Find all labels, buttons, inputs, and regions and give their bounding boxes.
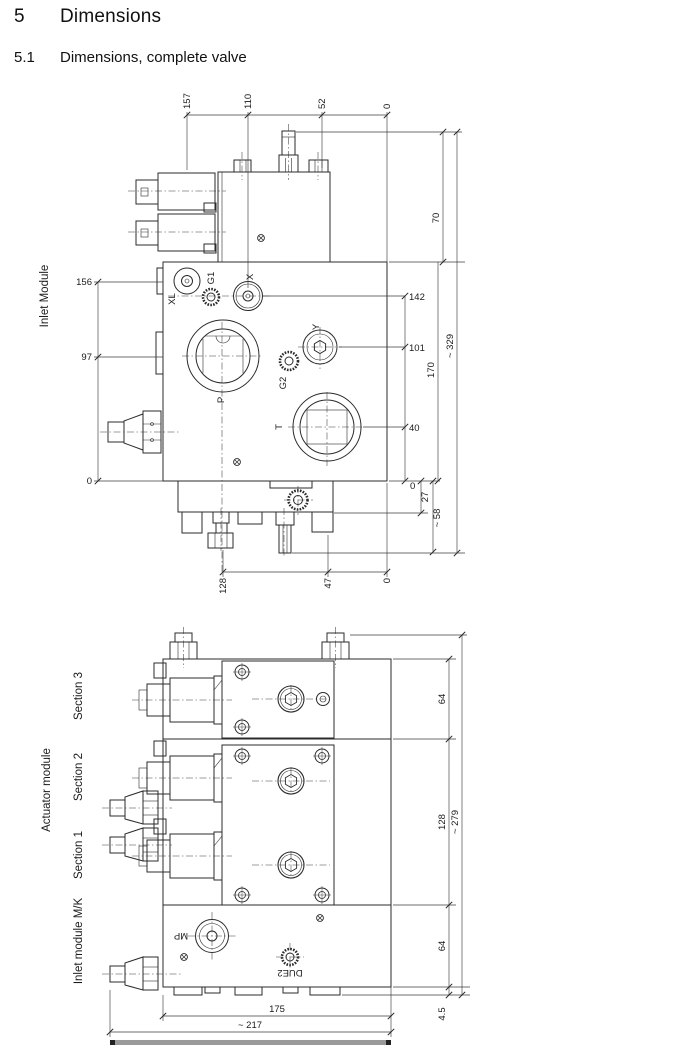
label-actuator-module: Actuator module xyxy=(41,748,53,832)
label-section-3: Section 3 xyxy=(73,672,85,720)
dim-left-97: 97 xyxy=(81,352,92,363)
dim-bottom-0: 0 xyxy=(382,578,393,583)
dim-right-279: ~ 279 xyxy=(450,810,461,834)
bottom-valve-block xyxy=(163,633,391,995)
dim-mark-101: 101 xyxy=(409,343,425,354)
dim-below-0: 0 xyxy=(410,481,415,492)
bottom-drawing: 64 128 64 4.5 ~ 279 175 ~ 217 MP DUE2 Ac… xyxy=(41,627,470,1045)
dim-left-156: 156 xyxy=(76,277,92,288)
dim-bottom-47: 47 xyxy=(323,578,334,589)
dim-right-4-5: 4.5 xyxy=(437,1007,448,1020)
top-valve-body xyxy=(156,131,387,481)
dim-left-0: 0 xyxy=(87,476,92,487)
bolt-icon xyxy=(313,747,331,765)
port-label-p: P xyxy=(216,397,227,403)
bottom-cone-connectors xyxy=(110,791,158,990)
dim-bottom-175: 175 xyxy=(269,1004,285,1015)
top-port-labels: XL G1 X P G2 Y T xyxy=(167,272,322,430)
port-label-xl: XL xyxy=(167,293,178,305)
port-label-due2: DUE2 xyxy=(277,967,302,978)
screw-icon xyxy=(234,459,241,466)
bolt-icon xyxy=(233,718,251,736)
dim-bottom-217: ~ 217 xyxy=(238,1020,262,1031)
bottom-dim-labels: 64 128 64 4.5 ~ 279 175 ~ 217 xyxy=(238,694,461,1031)
top-drawing: 157 110 52 0 156 97 0 70 170 ~ 329 142 1… xyxy=(39,93,465,594)
port-label-g1: G1 xyxy=(206,272,217,285)
dim-mark-40: 40 xyxy=(409,423,420,434)
dim-right-70: 70 xyxy=(431,213,442,224)
dim-mark-142: 142 xyxy=(409,292,425,303)
port-label-g2: G2 xyxy=(278,377,289,390)
label-section-2: Section 2 xyxy=(73,753,85,801)
label-section-1: Section 1 xyxy=(73,831,85,879)
dim-right-64-top: 64 xyxy=(437,694,448,705)
section-cover-plates xyxy=(222,661,334,905)
bottom-side-labels: Actuator module Section 3 Section 2 Sect… xyxy=(41,672,85,984)
port-label-y: Y xyxy=(311,323,322,330)
dim-right-329: ~ 329 xyxy=(445,334,456,358)
top-ports xyxy=(174,268,361,465)
bottom-solenoids xyxy=(139,663,222,880)
bottom-centerlines xyxy=(102,627,336,974)
top-side-label: Inlet Module xyxy=(39,265,51,328)
datasheet-page: 5Dimensions 5.1Dimensions, complete valv… xyxy=(0,0,699,1055)
top-dim-labels: 157 110 52 0 156 97 0 70 170 ~ 329 142 1… xyxy=(76,93,456,594)
bolt-icon xyxy=(233,886,251,904)
dim-top-157: 157 xyxy=(182,93,193,109)
bolt-icon xyxy=(313,886,331,904)
screw-icon xyxy=(258,235,265,242)
top-lower-assembly xyxy=(178,481,333,553)
port-label-x: X xyxy=(245,273,256,280)
dim-below-27: 27 xyxy=(420,492,431,503)
top-solenoids xyxy=(136,173,264,253)
screw-icon xyxy=(181,954,188,961)
dim-right-64-bottom: 64 xyxy=(437,941,448,952)
bolt-icon xyxy=(233,663,251,681)
bottom-port-labels: MP DUE2 xyxy=(174,930,303,978)
dimensions-diagram: 157 110 52 0 156 97 0 70 170 ~ 329 142 1… xyxy=(0,0,699,1055)
bolt-icon xyxy=(233,747,251,765)
dim-bottom-128: 128 xyxy=(218,578,229,594)
dim-right-170: 170 xyxy=(426,362,437,378)
dim-top-110: 110 xyxy=(243,94,254,109)
port-label-t: T xyxy=(274,424,285,430)
port-label-mp: MP xyxy=(174,930,188,941)
dim-right-128: 128 xyxy=(437,814,448,830)
label-inlet-module-mk: Inlet module M/K xyxy=(73,898,85,985)
ground-line xyxy=(110,1040,391,1045)
screw-icon xyxy=(317,915,324,922)
dim-top-0: 0 xyxy=(382,104,393,109)
inlet-module-ports xyxy=(181,915,324,965)
dim-below-58: ~ 58 xyxy=(432,509,443,528)
top-centerlines xyxy=(100,124,362,575)
dim-top-52: 52 xyxy=(317,98,328,109)
